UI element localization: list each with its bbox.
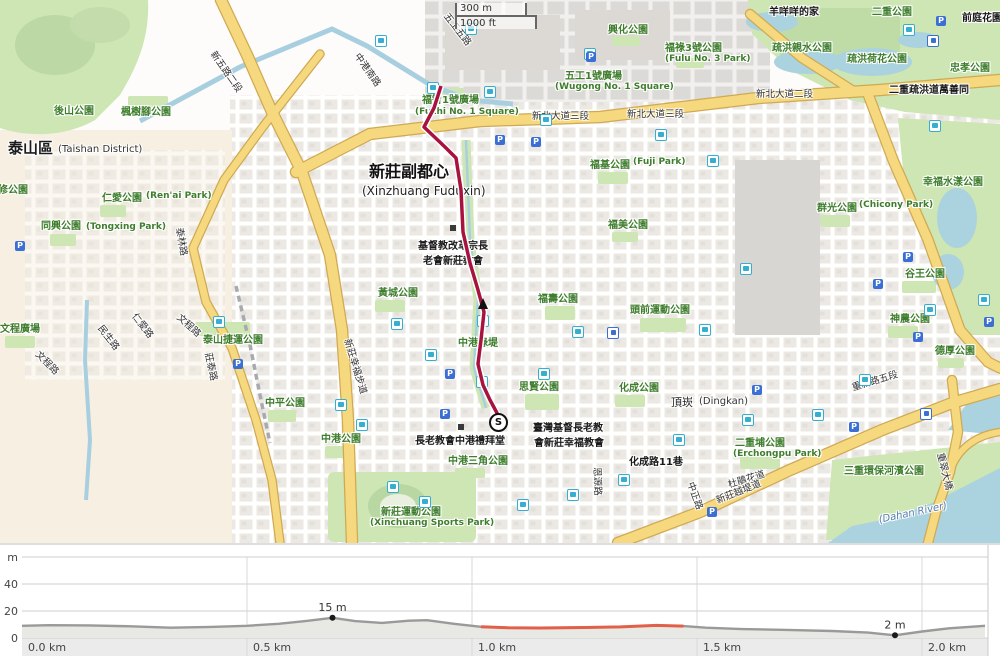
scale-bar: 300 m 1000 ft [455,3,537,29]
chart-y-tick-label: 0 [11,632,18,645]
chart-y-tick-label: 20 [4,605,18,618]
chart-x-tick-label: 2.0 km [928,641,966,654]
route-planner-app: 後山公園楓樹腳公園修公園泰山區(Taishan District)仁愛公園(Re… [0,0,1000,659]
chart-x-tick-label: 1.0 km [478,641,516,654]
scale-imperial-label: 1000 ft [455,15,537,29]
chart-x-tick-label: 0.0 km [28,641,66,654]
elevation-chart[interactable]: m402000.0 km0.5 km1.0 km1.5 km2.0 km15 m… [0,543,1000,659]
route-start-marker[interactable]: S [489,413,508,432]
elevation-chart-svg: m402000.0 km0.5 km1.0 km1.5 km2.0 km15 m… [0,543,1000,659]
chart-x-tick-label: 1.5 km [703,641,741,654]
elevation-point-label: 15 m [318,601,346,614]
map-base [0,0,1000,543]
chart-y-tick-label: m [7,551,18,564]
chart-x-tick-label: 0.5 km [253,641,291,654]
elevation-point-label: 2 m [884,618,905,631]
elevation-point-marker [330,615,336,621]
map-viewport[interactable]: 後山公園楓樹腳公園修公園泰山區(Taishan District)仁愛公園(Re… [0,0,1000,543]
elevation-point-marker [892,632,898,638]
chart-y-tick-label: 40 [4,578,18,591]
